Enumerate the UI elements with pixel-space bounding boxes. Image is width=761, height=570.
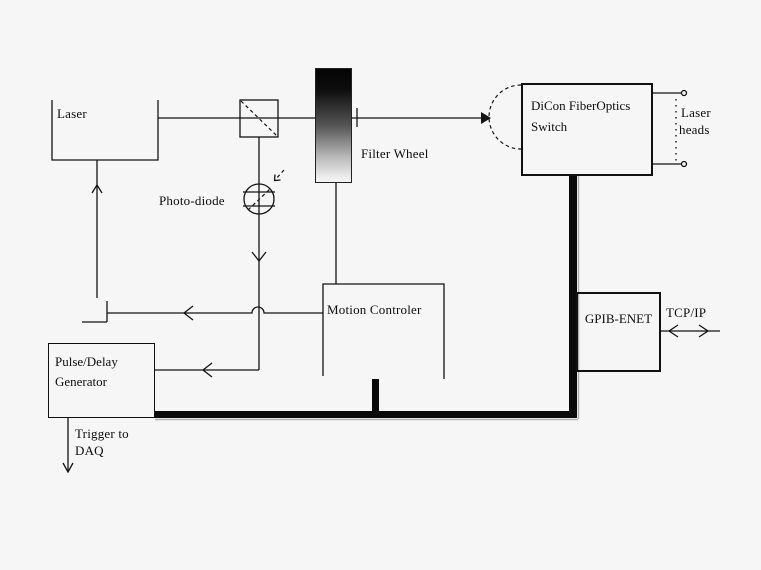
dicon-switch-label-line2: Switch: [531, 116, 651, 137]
bus-horizontal: [155, 411, 577, 418]
gpib-enet-box: GPIB-ENET: [576, 292, 661, 372]
optical-setup-diagram: DiCon FiberOptics Switch GPIB-ENET Pulse…: [0, 0, 761, 570]
trigger-label-line2: DAQ: [75, 443, 104, 459]
trigger-arrow: [63, 418, 73, 472]
motion-controller-box-outline: [323, 284, 444, 379]
filter-wheel-label: Filter Wheel: [361, 146, 429, 162]
pulse-delay-label-line1: Pulse/Delay: [55, 352, 154, 372]
port-circle-bottom: [682, 162, 687, 167]
wire-controller-to-laser: [82, 160, 323, 322]
motion-controller-label: Motion Controler: [327, 302, 422, 318]
pulse-delay-generator-box: Pulse/Delay Generator: [48, 343, 155, 418]
tcpip-arrow: [661, 325, 720, 337]
pulse-delay-label-line2: Generator: [55, 372, 154, 392]
port-circle-top: [682, 91, 687, 96]
bus-stub-controller: [372, 379, 379, 413]
light-arrow: [275, 170, 284, 180]
dicon-switch-box: DiCon FiberOptics Switch: [521, 83, 653, 176]
trigger-label-line1: Trigger to: [75, 426, 129, 442]
fiber-coupler-arc: [489, 85, 521, 149]
photodiode-label: Photo-diode: [159, 193, 225, 209]
gpib-enet-label: GPIB-ENET: [578, 311, 659, 327]
photodiode-symbol: [243, 170, 284, 214]
gpib-bus: [155, 176, 579, 420]
dicon-switch-label-line1: DiCon FiberOptics: [531, 95, 651, 116]
laser-heads-label-line1: Laser: [681, 105, 711, 121]
tcpip-label: TCP/IP: [666, 305, 706, 321]
wire-photodiode-to-generator: [155, 214, 266, 377]
laser-heads-label-line2: heads: [679, 122, 710, 138]
laser-label: Laser: [57, 106, 87, 122]
filter-wheel-graphic: [315, 68, 352, 183]
beam-filter-to-switch: [352, 108, 491, 127]
beam-splitter: [240, 100, 278, 184]
